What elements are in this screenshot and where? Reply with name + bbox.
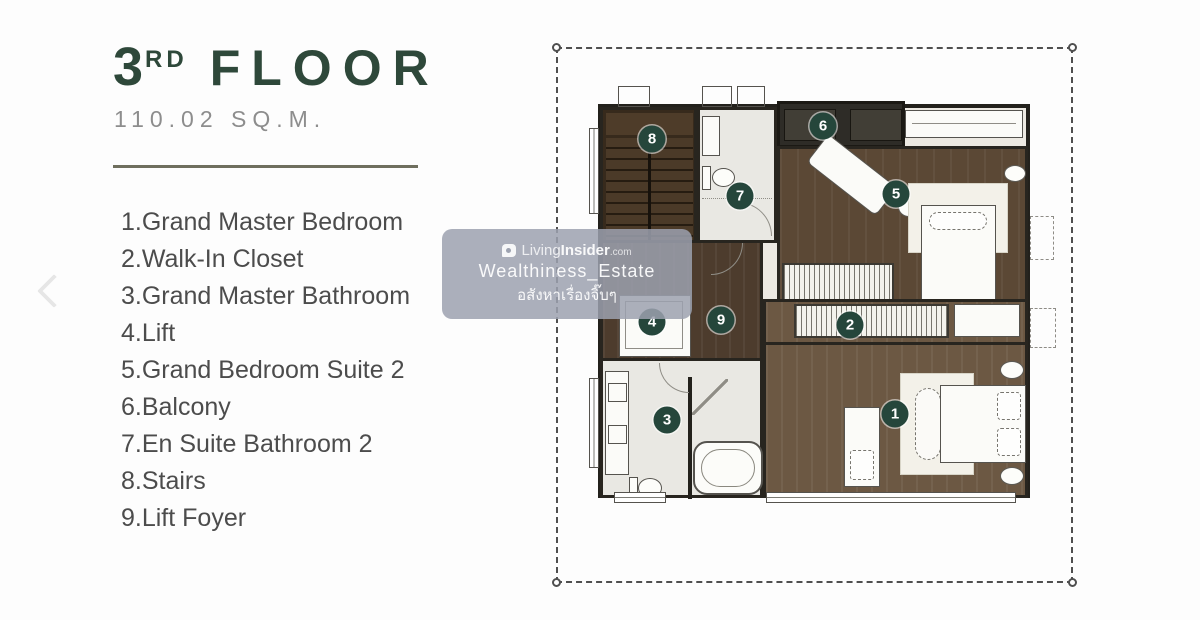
ac-outdoor-unit	[1030, 216, 1054, 260]
dressing-table	[954, 304, 1020, 337]
bench-cushion	[850, 450, 874, 480]
room-marker-6: 6	[810, 113, 837, 140]
watermark-brand-line: LivingInsider.com	[502, 242, 631, 259]
bathtub-basin	[701, 449, 755, 487]
bedroom-5-area	[777, 146, 1028, 302]
window	[589, 378, 599, 468]
balcony-area	[777, 101, 905, 148]
room-marker-7: 7	[727, 183, 754, 210]
bathroom-7-area	[697, 107, 777, 243]
boundary-corner-dot	[552, 43, 561, 52]
pillow	[997, 392, 1021, 420]
window	[766, 492, 1016, 503]
boundary-corner-dot	[1068, 578, 1077, 587]
wardrobe	[794, 304, 949, 338]
boundary-corner-dot	[1068, 43, 1077, 52]
toilet-tank	[702, 166, 711, 190]
ac-outdoor-unit	[1030, 308, 1056, 348]
runner	[915, 388, 941, 460]
room-marker-2: 2	[837, 312, 864, 339]
nightstand-lamp	[1000, 467, 1024, 485]
bathroom-sink	[702, 116, 720, 156]
room-marker-1: 1	[882, 401, 909, 428]
ledge-line	[912, 123, 1016, 124]
sink	[608, 425, 627, 444]
brand-tld: .com	[610, 247, 632, 258]
room-marker-9: 9	[708, 307, 735, 334]
bed	[940, 385, 1026, 463]
pillow	[929, 212, 987, 230]
brand-suffix: Insider	[561, 242, 610, 259]
room-marker-3: 3	[654, 407, 681, 434]
sink	[608, 383, 627, 402]
ac-unit-box	[702, 86, 732, 107]
brand-prefix: Living	[521, 242, 560, 259]
planter-box	[618, 86, 650, 107]
room-marker-5: 5	[883, 181, 910, 208]
bench	[844, 407, 880, 487]
door-swing-arc	[711, 243, 743, 275]
bathroom-3-area	[600, 358, 763, 498]
bed	[921, 205, 996, 300]
watermark-account-name: Wealthiness_Estate	[479, 261, 656, 282]
nightstand-lamp	[1000, 361, 1024, 379]
door-swing-arc	[659, 363, 689, 393]
ac-unit-box	[737, 86, 765, 107]
screenshot-root: 3RDFLOOR 110.02 SQ.M. 1.Grand Master Bed…	[0, 0, 1200, 620]
window	[614, 492, 666, 503]
room-marker-8: 8	[639, 126, 666, 153]
bathtub	[693, 441, 763, 495]
boundary-corner-dot	[552, 578, 561, 587]
nightstand-lamp	[1004, 165, 1026, 182]
closet-area	[763, 299, 1028, 345]
livinginsider-logo-icon	[502, 244, 516, 257]
chaise-lounge	[806, 134, 898, 217]
balcony-panel	[850, 109, 902, 141]
wardrobe	[782, 263, 894, 301]
watermark-badge: LivingInsider.com Wealthiness_Estate อสั…	[442, 229, 692, 319]
window-ledge	[905, 110, 1023, 138]
shower-door	[692, 379, 728, 415]
pillow	[997, 428, 1021, 456]
window	[589, 128, 599, 214]
watermark-thai-text: อสังหาเรื่องจิ๊บๆ	[517, 283, 617, 307]
